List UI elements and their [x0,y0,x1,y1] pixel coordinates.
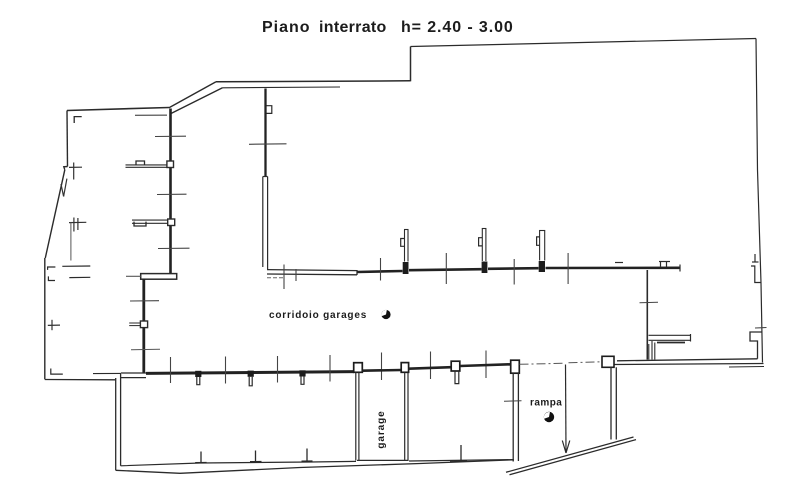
svg-text:h= 2.40 - 3.00: h= 2.40 - 3.00 [401,19,514,36]
svg-text:corridoio garages: corridoio garages [269,310,367,321]
svg-text:garage: garage [376,410,387,448]
svg-text:Piano: Piano [262,19,311,36]
svg-text:interrato: interrato [319,19,387,36]
svg-text:rampa: rampa [530,398,562,409]
